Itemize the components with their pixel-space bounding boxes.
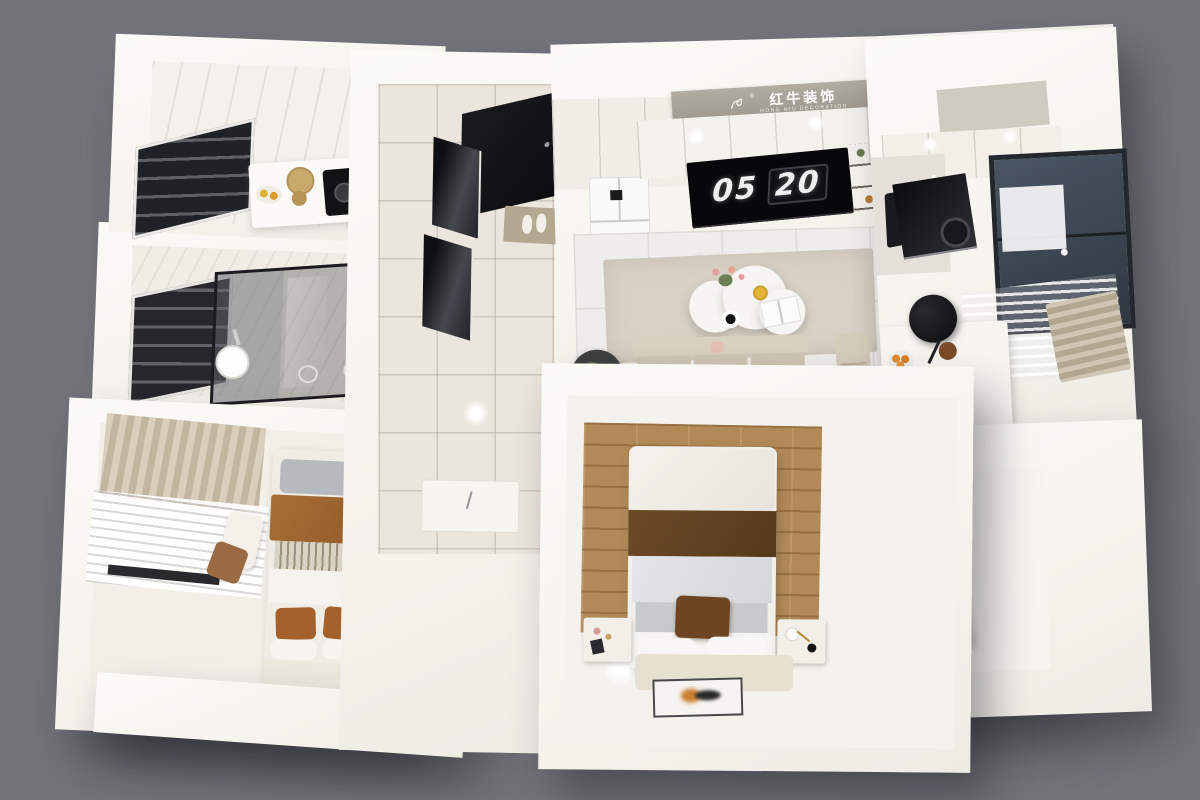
frosted-glass-panel	[936, 81, 1049, 134]
laundry-cabinet	[421, 479, 520, 533]
slipper	[522, 215, 533, 234]
artwork-on-floor	[652, 677, 743, 717]
wardrobe-panel-dark	[422, 234, 473, 341]
registered-mark: ®	[750, 94, 755, 100]
faucet-icon	[466, 491, 473, 509]
wardrobe-panel-dark	[432, 137, 481, 240]
scene-3d-floorplan: ® 红牛装饰 HONG NIU DECORATION 05 20 05 20	[0, 0, 1200, 800]
shelf-decor	[856, 148, 865, 157]
shade-pull-dot	[1061, 249, 1068, 256]
ceiling-spotlight	[806, 114, 825, 133]
flower	[712, 268, 719, 275]
burner-ring	[938, 215, 972, 249]
lamp-base-black	[807, 643, 816, 652]
slatted-bench	[1045, 290, 1131, 382]
room-living: ® 红牛装饰 HONG NIU DECORATION 05 20 05 20	[550, 35, 921, 406]
blanket-dark-brown	[628, 510, 776, 557]
ceiling-spotlight	[687, 127, 706, 146]
room-master-bedroom	[538, 363, 974, 773]
photo-frame-dark	[590, 639, 605, 655]
pillow-brown-square	[675, 595, 731, 639]
range-hood-black	[892, 173, 977, 260]
fridge-drawer-line	[591, 219, 649, 222]
fridge-control-panel	[610, 190, 622, 200]
pillow-brown	[275, 607, 316, 640]
slipper	[536, 213, 547, 232]
cloud-coffee-table	[688, 264, 802, 339]
book-spine	[777, 300, 783, 324]
roller-shade	[999, 185, 1066, 252]
master-bed	[627, 446, 777, 669]
duvet-top-white	[631, 448, 776, 511]
nightstand-left	[583, 617, 631, 661]
pillow-white	[270, 639, 317, 661]
art-dark-smear	[695, 690, 721, 701]
shower-tile-band	[213, 270, 284, 402]
clock-minutes: 20	[767, 163, 828, 205]
ceiling-spotlight	[922, 136, 939, 153]
ceiling-spotlight	[1001, 128, 1018, 145]
tv-clock-screen: 05 20	[686, 147, 854, 228]
wardrobe-panel-dark	[415, 336, 464, 437]
door-handle-icon	[544, 142, 549, 148]
jewelry-decor	[593, 628, 600, 635]
clock-hours: 05	[712, 173, 759, 208]
flower	[738, 274, 744, 280]
sofa-pillow-blush	[710, 341, 723, 352]
jewelry-decor	[605, 634, 611, 640]
